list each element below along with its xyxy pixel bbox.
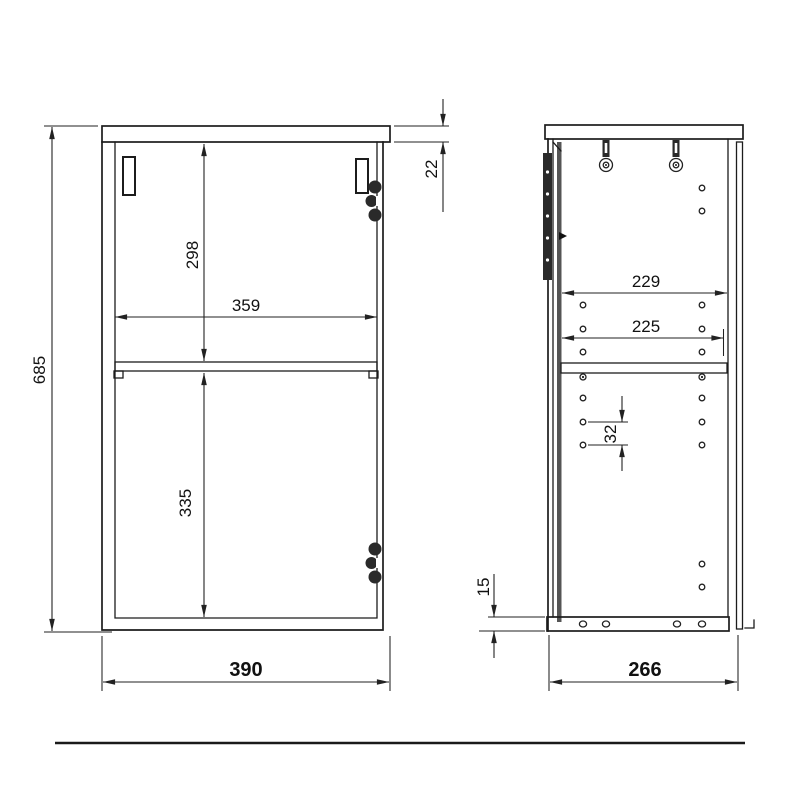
dim-label-32: 32 — [601, 425, 620, 444]
dim-label-359: 359 — [232, 296, 260, 315]
front-carcass-inner — [115, 142, 377, 618]
side-shelf — [561, 363, 727, 373]
wall-bracket-icon — [670, 140, 683, 172]
dim-label-229: 229 — [632, 272, 660, 291]
dim-lower-height: 335 — [176, 373, 204, 617]
front-view — [102, 126, 390, 630]
hinge-rail-icon — [543, 153, 567, 280]
dim-label-390: 390 — [229, 659, 262, 681]
side-dimensions: 229 225 32 15 266 — [474, 272, 738, 691]
dim-label-685: 685 — [30, 356, 49, 384]
dim-label-335: 335 — [176, 489, 195, 517]
side-top-panel — [545, 125, 743, 139]
dim-bottom-thickness: 15 — [474, 574, 545, 658]
technical-drawing-page: 685 22 298 359 335 390 — [0, 0, 800, 800]
dim-label-298: 298 — [183, 241, 202, 269]
wall-bracket-left-icon — [123, 157, 135, 195]
hinge-arrow-icon — [559, 232, 567, 240]
hinge-bottom-icon — [366, 543, 382, 584]
dim-label-225: 225 — [632, 317, 660, 336]
back-rail — [737, 142, 743, 629]
door-edge — [557, 142, 562, 622]
dim-overall-height: 685 — [30, 126, 112, 632]
dim-label-266: 266 — [628, 659, 661, 681]
front-dimensions: 685 22 298 359 335 390 — [30, 99, 449, 691]
dim-label-15: 15 — [474, 578, 493, 597]
wall-bracket-icon — [600, 140, 613, 172]
shelf-pin-holes-front — [580, 302, 586, 448]
dim-overall-depth: 266 — [549, 635, 738, 691]
back-hook-icon — [745, 620, 754, 628]
side-view — [543, 125, 754, 631]
dim-hole-pitch: 32 — [588, 396, 628, 471]
dim-overall-width: 390 — [102, 636, 390, 691]
dim-label-22: 22 — [422, 160, 441, 179]
wall-bracket-right-icon — [356, 159, 368, 193]
dim-inner-depth: 229 — [562, 272, 727, 293]
shelf-pin-holes-rear — [699, 185, 705, 590]
cabinet-drawing: 685 22 298 359 335 390 — [0, 0, 800, 800]
dim-upper-height: 298 — [183, 144, 204, 361]
front-shelf — [115, 362, 377, 371]
front-top-panel — [102, 126, 390, 142]
dim-inner-width: 359 — [115, 296, 377, 317]
front-carcass-outline — [102, 142, 383, 630]
dim-top-thickness: 22 — [394, 99, 449, 212]
bottom-panel-holes — [579, 621, 705, 627]
